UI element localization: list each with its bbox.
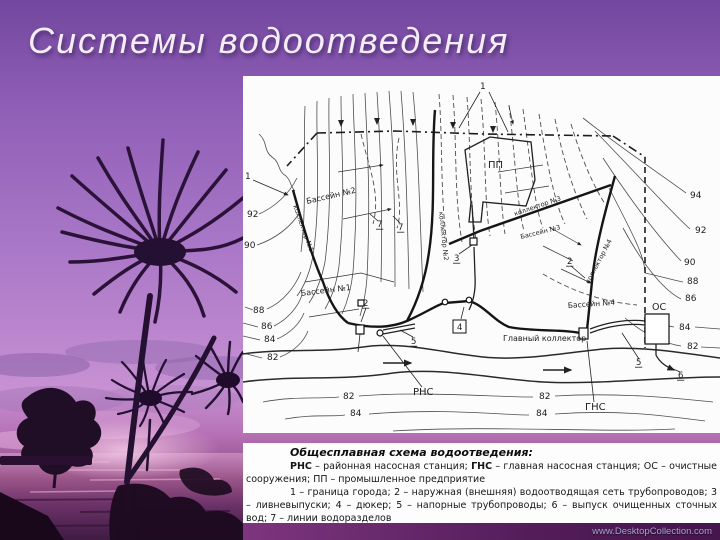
diagram-label: 92 [695, 226, 706, 236]
diagram-label: РНС [413, 387, 434, 398]
diagram-label: ГНС [585, 402, 606, 413]
diagram-label: 94 [690, 191, 702, 201]
slope-flow-arrows [338, 118, 496, 133]
diagram-label: Бассейн №2 [305, 186, 356, 206]
rns-pump [377, 330, 383, 336]
drainage-scheme-panel: 11ППБассейн №2Бассейн №1Бассейн №3Бассей… [243, 76, 720, 433]
diagram-label: 92 [247, 210, 258, 220]
rns-building [356, 325, 364, 334]
river-contours [263, 394, 713, 431]
diagram-label: 82 [343, 392, 354, 402]
diagram-label: 84 [350, 409, 362, 419]
diagram-label: 82 [687, 342, 698, 352]
river-flow-arrows [383, 363, 571, 370]
diagram-label: 84 [264, 335, 276, 345]
diagram-label: 5 [411, 337, 416, 347]
slide-title: Системы водоотведения [28, 20, 509, 62]
diagram-label: 5 [636, 358, 641, 368]
diagram-label: 84 [679, 323, 691, 333]
diagram-label: ПП [488, 160, 503, 171]
diagram-label: 90 [684, 258, 696, 268]
diagram-label: 1 [245, 172, 251, 182]
diagram-label: 1 [480, 82, 486, 92]
city-boundary [253, 92, 645, 348]
diagram-label: 2 [567, 257, 572, 267]
diagram-label: ОС [652, 302, 666, 313]
leader-lines [361, 214, 680, 402]
diagram-label: 82 [267, 353, 278, 363]
diagram-label: коллектор №3 [513, 194, 562, 218]
watermark-strip: www.DesktopCollection.com [243, 523, 720, 540]
diagram-label: Главный коллектор [503, 334, 586, 343]
palm-crown-core [134, 238, 186, 266]
diagram-label: 82 [539, 392, 550, 402]
diagram-label: 6 [678, 371, 683, 381]
diagram-label: Бассейн №3 [520, 223, 562, 241]
duker-end [442, 299, 448, 305]
drainage-scheme-diagram: 11ППБассейн №2Бассейн №1Бассейн №3Бассей… [243, 76, 720, 433]
diagram-label: 88 [687, 277, 699, 287]
diagram-label: 2 [363, 299, 368, 309]
diagram-label: 86 [261, 322, 273, 332]
caption-panel: Общесплавная схема водоотведения: РНС – … [243, 443, 720, 523]
collectors [293, 110, 615, 333]
presentation-slide: Системы водоотведения [0, 0, 720, 540]
watermark-text: www.DesktopCollection.com [592, 526, 712, 537]
diagram-labels: 11ППБассейн №2Бассейн №1Бассейн №3Бассей… [244, 82, 706, 419]
diagram-label: коллектор №2 [437, 211, 450, 261]
treatment-plant [645, 314, 669, 344]
river [243, 345, 720, 382]
diagram-label: коллектор №1 [291, 204, 315, 253]
duker-end [466, 297, 472, 303]
caption-legend: 1 – граница города; 2 – наружная (внешня… [246, 486, 717, 525]
diagram-label: 3 [454, 254, 459, 264]
diagram-label: 7 [398, 223, 403, 233]
horizon-land [0, 456, 92, 465]
caption-abbreviations: РНС – районная насосная станция; ГНС – г… [246, 460, 717, 486]
pp-outlet-line [469, 205, 475, 310]
caption-heading: Общесплавная схема водоотведения: [246, 446, 717, 460]
treated-water-outfall [656, 344, 674, 370]
storm-outlet [470, 238, 477, 245]
diagram-label: Бассейн №4 [568, 298, 616, 310]
palm-sunset-photo [0, 0, 243, 540]
diagram-label: 90 [244, 241, 256, 251]
diagram-label: Бассейн №1 [300, 283, 351, 298]
diagram-label: 88 [253, 306, 265, 316]
diagram-label: 84 [536, 409, 548, 419]
diagram-label: 7 [377, 220, 382, 230]
diagram-label: 86 [685, 294, 697, 304]
diagram-label: 4 [457, 323, 462, 333]
